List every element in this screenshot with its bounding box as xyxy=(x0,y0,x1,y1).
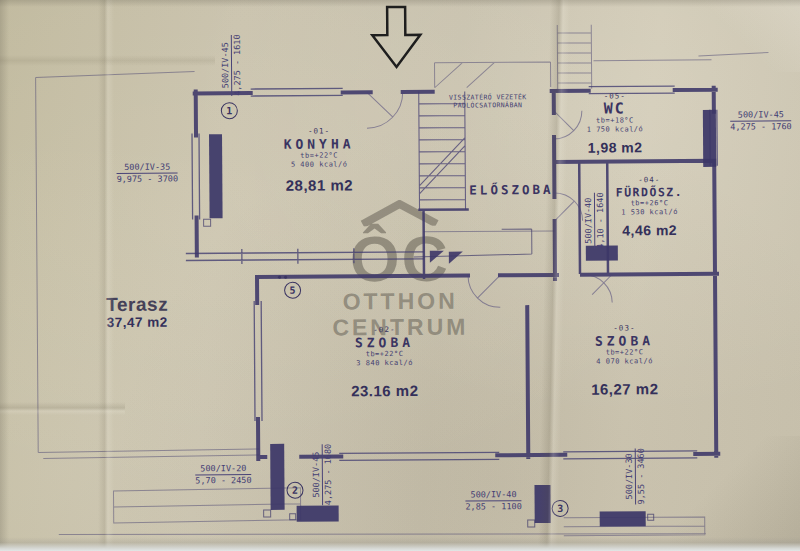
blueprint-paper: ÔC OTTHON CENTRUM xyxy=(0,0,800,551)
marker-5-dots xyxy=(278,276,281,279)
room-label-szoba2: -02- SZOBA tb=+22°C 3 840 kcal/ó 23.16 m… xyxy=(351,325,419,399)
marker-2: 2 xyxy=(286,482,303,499)
radiator-spec-d8: 500/IV-30 9,55 - 3460 xyxy=(624,448,647,504)
room-label-furdoszoba: -04- FÜRDŐSZ. tb=+26°C 1 530 kcal/ó 4,46… xyxy=(616,175,684,238)
radiator xyxy=(209,134,223,218)
room-label-szoba3: -03- SZOBA tb=+22°C 4 070 kcal/ó 16,27 m… xyxy=(591,323,659,397)
marker-5: 5 xyxy=(284,282,301,299)
radiator xyxy=(600,511,646,526)
pipe-note: VISSZATÉRŐ VEZETÉK PADLÓCSATORNÁBAN xyxy=(449,93,527,110)
radiator-spec-d6: 500/IV-45 4,275 - 1680 xyxy=(311,444,334,506)
room-label-terasz: Terasz 37,47 m2 xyxy=(106,296,168,330)
floor-plan: ÔC OTTHON CENTRUM xyxy=(0,0,800,551)
radiator-spec-d1: 500/IV-35 9,975 - 3700 xyxy=(116,162,178,185)
radiator xyxy=(297,505,339,521)
room-label-wc: -05- WC tb=+18°C 1 750 kcal/ó 1,98 m2 xyxy=(586,91,643,155)
pipe-note-line2: PADLÓCSATORNÁBAN xyxy=(449,101,527,110)
room-label-eloszoba: ELŐSZOBA xyxy=(469,181,553,198)
radiator-spec-d5: 500/IV-20 5,70 - 2450 xyxy=(195,463,251,486)
radiator-spec-d3: 500/IV-45 4,275 - 1760 xyxy=(730,109,792,132)
marker-1: 1 xyxy=(221,102,238,119)
radiator-spec-d2: 500/IV-45 4,275 - 1610 xyxy=(220,34,243,96)
plot-lines xyxy=(35,23,772,539)
marker-3: 3 xyxy=(552,500,569,517)
room-label-konyha: -01- KONYHA tb=+22°C 5 400 kcal/ó 28,81 … xyxy=(283,126,354,193)
radiator-spec-d7: 500/IV-40 2,85 - 1100 xyxy=(465,489,521,512)
radiator xyxy=(534,485,550,523)
radiator xyxy=(270,444,284,510)
radiator-spec-d4: 500/IV-40 4,10 - 1640 xyxy=(583,192,606,248)
plan-drawing xyxy=(0,0,800,551)
valve-icons xyxy=(430,251,463,264)
radiator xyxy=(703,110,716,167)
entrance-arrow-icon xyxy=(372,7,420,67)
